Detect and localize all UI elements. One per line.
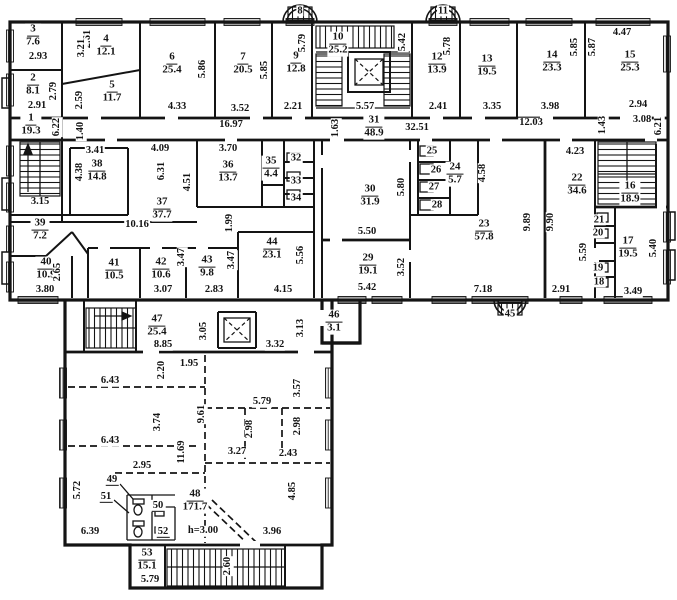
room-number: 13	[479, 54, 496, 67]
dimension-label: 5.78	[443, 36, 454, 56]
room-label-6: 625.4	[161, 52, 182, 77]
dimension-label: 9.90	[546, 212, 557, 232]
room-number: 25	[427, 145, 438, 156]
dimension-label: 5.42	[357, 283, 377, 294]
room-label-51: 51	[99, 491, 114, 503]
room-label-13: 1319.5	[476, 54, 497, 79]
dimension-label: 5.79	[252, 397, 272, 408]
dimension-label: 2.21	[283, 102, 303, 113]
room-label-1: 119.3	[20, 113, 41, 138]
room-number: 38	[89, 159, 106, 172]
room-area: 23.3	[542, 63, 561, 75]
room-area: 10.5	[104, 271, 123, 283]
dimension-label: 2.65	[53, 262, 64, 282]
dimension-label: 3.35	[482, 102, 502, 113]
dimension-label: 5.57	[355, 102, 375, 113]
room-label-4: 412.1	[95, 34, 116, 59]
room-label-21: 21	[593, 214, 606, 225]
room-number: 27	[429, 181, 440, 192]
dimension-label: 9.89	[523, 212, 534, 232]
room-area: 7.2	[33, 231, 47, 243]
room-area: 13.9	[427, 65, 446, 77]
room-area: 31.9	[360, 197, 379, 209]
dimension-label: 32.51	[404, 123, 430, 134]
room-area: 25.4	[147, 327, 166, 339]
room-label-28: 28	[431, 199, 444, 210]
room-label-3: 37.6	[25, 24, 41, 49]
room-label-2: 28.1	[25, 73, 41, 98]
dimension-label: 3.57	[293, 378, 304, 398]
room-area: 4.4	[264, 169, 278, 181]
dimension-label: 7.18	[473, 285, 493, 296]
dimension-label: 2.20	[157, 360, 168, 380]
dimension-label: 5.85	[260, 60, 271, 80]
room-label-38: 3814.8	[86, 159, 107, 184]
dimension-label: 5.86	[198, 59, 209, 79]
dimension-label: 2.91	[551, 285, 571, 296]
room-number: 39	[32, 218, 49, 231]
dimension-label: 5.79	[140, 575, 160, 586]
dimension-label: 3.52	[397, 257, 408, 277]
dimension-label: 3.13	[296, 318, 307, 338]
dimension-label: 5.40	[649, 238, 660, 258]
room-number: 7	[237, 52, 249, 65]
room-number: 50	[152, 500, 165, 512]
dimension-label: 2.83	[204, 285, 224, 296]
dimension-label: 4.33	[167, 102, 187, 113]
room-number: 10	[330, 32, 347, 45]
room-number: 22	[569, 173, 586, 186]
dimension-label: 12.03	[518, 118, 544, 129]
room-number: 49	[106, 474, 119, 486]
room-number: 46	[326, 310, 343, 323]
dimension-label: 5.87	[588, 37, 599, 57]
room-label-41: 4110.5	[103, 258, 124, 283]
room-label-25: 25	[426, 145, 439, 156]
dimension-label: 3.05	[199, 321, 210, 341]
room-label-7: 720.5	[232, 52, 253, 77]
room-area: 15.1	[137, 561, 156, 573]
room-number: 1	[25, 113, 37, 126]
room-number: 3	[27, 24, 39, 37]
dimension-label: 2.79	[49, 81, 60, 101]
dimension-label: 10.16	[124, 220, 150, 231]
dimension-label: 3.15	[30, 197, 50, 208]
dimension-label: 6.21	[654, 116, 665, 136]
room-area: 10.6	[151, 270, 170, 282]
dimension-label: 4.85	[288, 481, 299, 501]
dimension-label: 4.38	[75, 162, 86, 182]
room-number: 52	[157, 526, 170, 538]
room-label-8: 8	[296, 5, 303, 16]
room-number: 48	[187, 489, 204, 502]
room-label-10: 1025.2	[327, 32, 348, 57]
room-label-9: 912.8	[285, 51, 306, 76]
dimension-label: 6.31	[157, 161, 168, 181]
room-area: 23.1	[262, 250, 281, 262]
dimension-label: h=3.00	[187, 526, 219, 537]
room-area: 14.8	[87, 172, 106, 184]
dimension-label: 2.59	[75, 90, 86, 110]
room-label-20: 20	[592, 227, 605, 238]
room-number: 29	[360, 253, 377, 266]
dimension-label: 5.80	[397, 177, 408, 197]
dimension-label: 2.94	[628, 100, 648, 111]
room-area: 11.7	[103, 93, 122, 105]
dimension-label: 6.43	[100, 436, 120, 447]
room-area: 57.8	[474, 232, 493, 244]
room-number: 34	[291, 192, 302, 203]
room-label-19: 19	[592, 262, 605, 273]
room-number: 43	[199, 255, 216, 268]
room-label-22: 2234.6	[566, 173, 587, 198]
dimension-label: 3.32	[265, 340, 285, 351]
dimension-label: 3.47	[227, 250, 238, 270]
room-area: 12.8	[286, 64, 305, 76]
room-area: 25.4	[162, 65, 181, 77]
room-label-47: 4725.4	[146, 314, 167, 339]
room-label-37: 3737.7	[151, 197, 172, 222]
room-number: 45	[505, 308, 516, 319]
room-number: 33	[291, 175, 302, 186]
dimension-label: 3.74	[153, 412, 164, 432]
dimension-label: 3.70	[218, 144, 238, 155]
room-area: 13.7	[218, 173, 237, 185]
dimension-label: 2.60	[223, 556, 234, 576]
room-number: 51	[100, 491, 113, 503]
room-number: 11	[438, 5, 448, 16]
room-number: 47	[149, 314, 166, 327]
dimension-label: 11.69	[177, 439, 188, 464]
room-number: 35	[263, 156, 280, 169]
dimension-label: 1.99	[225, 213, 236, 233]
room-label-24: 245.7	[446, 162, 465, 187]
dimension-label: 2.98	[293, 416, 304, 436]
room-label-5: 511.7	[102, 80, 123, 105]
room-number: 16	[622, 181, 639, 194]
room-label-33: 33	[290, 175, 303, 186]
room-number: 21	[594, 214, 605, 225]
room-area: 18.9	[620, 194, 639, 206]
room-area: 20.5	[233, 65, 252, 77]
floor-plan: 37.628.1119.3412.1511.7625.4720.5912.810…	[0, 0, 677, 600]
dimension-label: 16.97	[218, 120, 244, 131]
dimension-label: 3.27	[227, 447, 247, 458]
room-label-36: 3613.7	[217, 160, 238, 185]
room-area: 7.6	[26, 37, 40, 49]
room-number: 32	[291, 152, 302, 163]
room-number: 53	[139, 548, 156, 561]
room-label-34: 34	[290, 192, 303, 203]
dimension-label: 3.47	[177, 247, 188, 267]
room-number: 30	[362, 184, 379, 197]
room-number: 44	[264, 237, 281, 250]
dimension-label: 3.96	[262, 527, 282, 538]
room-label-39: 397.2	[31, 218, 50, 243]
dimension-label: 2.43	[278, 449, 298, 460]
room-label-53: 5315.1	[136, 548, 157, 573]
dimension-label: 3.80	[35, 285, 55, 296]
room-number: 28	[432, 199, 443, 210]
dimension-label: 8.85	[153, 340, 173, 351]
room-label-27: 27	[428, 181, 441, 192]
dimension-label: 2.91	[27, 101, 47, 112]
dimension-label: 3.08	[632, 115, 652, 126]
room-number: 41	[106, 258, 123, 271]
room-number: 37	[154, 197, 171, 210]
room-area: 34.6	[567, 186, 586, 198]
dimension-label: 4.15	[273, 285, 293, 296]
room-label-11: 11	[437, 5, 449, 16]
room-number: 26	[431, 164, 442, 175]
room-number: 20	[593, 227, 604, 238]
dimension-label: 3.41	[85, 146, 105, 157]
room-label-16: 1618.9	[619, 181, 640, 206]
room-area: 19.5	[477, 67, 496, 79]
dimension-label: 3.07	[153, 285, 173, 296]
room-label-30: 3031.9	[359, 184, 380, 209]
dimension-label: 5.85	[570, 37, 581, 57]
room-label-50: 50	[151, 500, 166, 512]
room-label-29: 2919.1	[357, 253, 378, 278]
dimension-label: 2.41	[428, 102, 448, 113]
room-label-49: 49	[105, 474, 120, 486]
room-number: 14	[544, 50, 561, 63]
room-number: 15	[622, 50, 639, 63]
dimension-label: 3.49	[623, 287, 643, 298]
dimension-label: 4.09	[150, 144, 170, 155]
room-area: 25.3	[620, 63, 639, 75]
dimension-label: 4.47	[612, 28, 632, 39]
room-number: 36	[220, 160, 237, 173]
dimension-label: 4.23	[565, 147, 585, 158]
dimension-label: 5.72	[73, 480, 84, 500]
dimension-label: 1.63	[331, 118, 342, 138]
room-area: 12.1	[96, 47, 115, 59]
room-label-31: 3148.9	[363, 115, 384, 140]
room-number: 8	[297, 5, 302, 16]
room-label-26: 26	[430, 164, 443, 175]
dimension-label: 2.93	[28, 52, 48, 63]
room-area: 19.3	[21, 126, 40, 138]
dimension-label: 5.50	[357, 227, 377, 238]
room-number: 42	[153, 257, 170, 270]
room-number: 23	[476, 219, 493, 232]
dimension-label: 6.39	[80, 527, 100, 538]
room-number: 17	[620, 236, 637, 249]
room-area: 19.5	[618, 249, 637, 261]
dimension-label: 2.98	[245, 419, 256, 439]
room-label-52: 52	[156, 526, 171, 538]
room-label-18: 18	[593, 276, 606, 287]
room-area: 171.7	[183, 502, 208, 514]
dimension-label: 9.61	[197, 404, 208, 424]
dimension-label: 4.58	[478, 163, 489, 183]
room-label-15: 1525.3	[619, 50, 640, 75]
dimension-label: 5.59	[579, 242, 590, 262]
room-area: 8.1	[26, 86, 40, 98]
room-label-23: 2357.8	[473, 219, 494, 244]
room-area: 9.8	[200, 268, 214, 280]
room-area: 3.1	[327, 323, 341, 335]
room-label-43: 439.8	[198, 255, 217, 280]
room-area: 48.9	[364, 128, 383, 140]
room-area: 5.7	[448, 175, 462, 187]
room-label-17: 1719.5	[617, 236, 638, 261]
dimension-label: 1.95	[179, 359, 199, 370]
room-number: 19	[593, 262, 604, 273]
dimension-label: 4.51	[183, 172, 194, 192]
dimension-label: 3.52	[230, 104, 250, 115]
room-label-35: 354.4	[262, 156, 281, 181]
dimension-label: 5.56	[296, 245, 307, 265]
room-number: 4	[100, 34, 112, 47]
dimension-label: 3.98	[540, 102, 560, 113]
dimension-label: 1.43	[598, 115, 609, 135]
dimension-label: 6.43	[100, 376, 120, 387]
room-number: 31	[366, 115, 383, 128]
dimension-label: 2.95	[132, 461, 152, 472]
label-layer: 37.628.1119.3412.1511.7625.4720.5912.810…	[0, 0, 677, 600]
room-number: 5	[106, 80, 118, 93]
room-number: 24	[447, 162, 464, 175]
dimension-label: 3.21	[77, 38, 88, 58]
room-number: 6	[166, 52, 178, 65]
room-number: 2	[27, 73, 39, 86]
dimension-label: 5.42	[398, 32, 409, 52]
room-label-42: 4210.6	[150, 257, 171, 282]
room-label-46: 463.1	[325, 310, 344, 335]
room-area: 19.1	[358, 266, 377, 278]
room-label-45: 45	[504, 308, 517, 319]
dimension-label: 5.79	[298, 33, 309, 53]
room-label-14: 1423.3	[541, 50, 562, 75]
room-area: 37.7	[152, 210, 171, 222]
room-label-32: 32	[290, 152, 303, 163]
room-label-48: 48171.7	[182, 489, 209, 514]
room-area: 25.2	[328, 45, 347, 57]
room-label-44: 4423.1	[261, 237, 282, 262]
room-number: 18	[594, 276, 605, 287]
dimension-label: 6.22	[52, 117, 63, 137]
dimension-label: 1.40	[76, 121, 87, 141]
